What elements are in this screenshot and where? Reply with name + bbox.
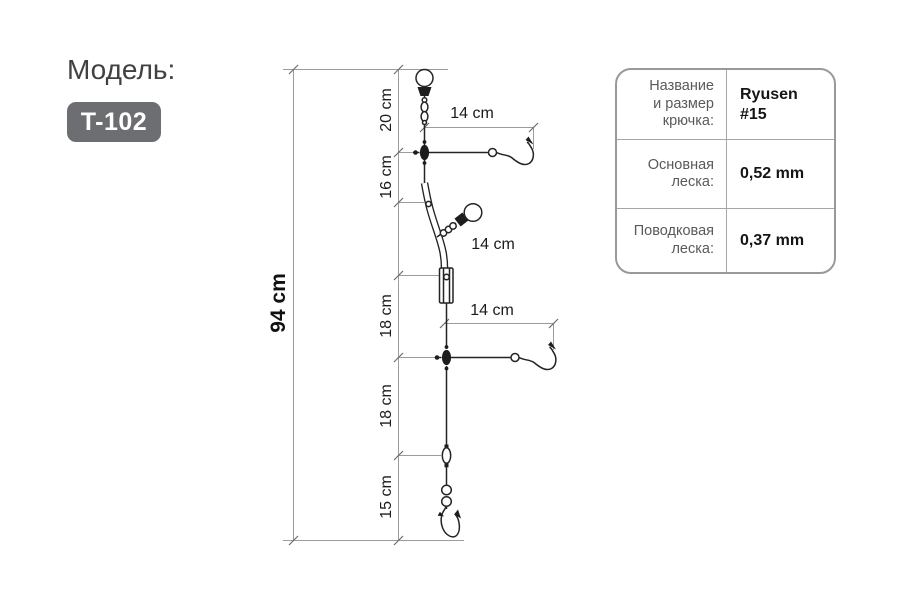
spec-label-leader-line: Поводковая леска:: [617, 209, 727, 272]
tube-sleeve: [440, 268, 454, 303]
segment-length-label: 18 cm: [378, 384, 396, 428]
swivel-chain-icon: [421, 98, 428, 125]
spec-value-leader-line: 0,37 mm: [727, 209, 834, 272]
spec-value-main-line: 0,52 mm: [727, 140, 834, 209]
total-length-label: 94 cm: [267, 273, 291, 333]
spec-label-hook: Название и размер крючка:: [617, 70, 727, 140]
dimension-lines: [283, 65, 558, 545]
spec-label-main-line: Основная леска:: [617, 140, 727, 209]
float-bead: [416, 70, 433, 87]
segment-length-label: 16 cm: [378, 155, 396, 199]
hook-3: [438, 506, 461, 537]
segment-length-label: 15 cm: [378, 475, 396, 519]
bottom-beads: [442, 485, 452, 506]
leader-length-label: 14 cm: [450, 105, 494, 123]
leader-length-label: 14 cm: [470, 302, 514, 320]
leader-length-label: 14 cm: [471, 236, 515, 254]
spec-value-hook: Ryusen #15: [727, 70, 834, 140]
side-float-branch: [437, 204, 482, 237]
sliding-swivel-2: [435, 345, 451, 370]
anti-tangle-tube: [425, 183, 445, 268]
dimension-ticks: [289, 65, 558, 545]
hook-2: [511, 342, 556, 370]
branch-float-ball: [464, 204, 482, 222]
sliding-swivel-1: [413, 140, 429, 165]
rig-infographic: Модель: T-102: [0, 0, 900, 600]
barrel-swivel: [442, 445, 450, 468]
segment-length-label: 18 cm: [378, 294, 396, 338]
spec-table: Название и размер крючка: Ryusen #15 Осн…: [615, 68, 836, 274]
stopper-cone: [418, 87, 432, 96]
hook-1: [489, 137, 534, 165]
segment-length-label: 20 cm: [378, 88, 396, 132]
